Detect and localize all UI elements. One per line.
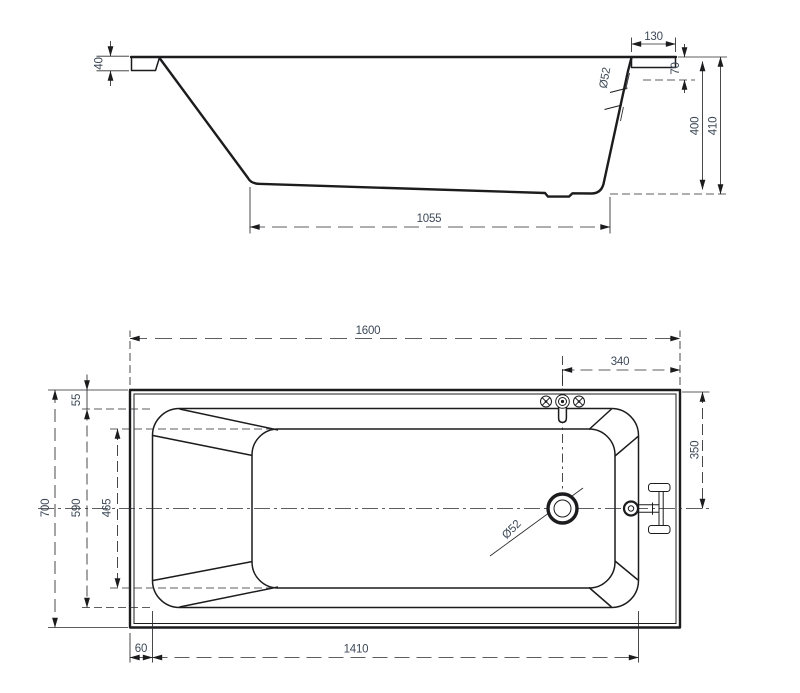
dim-end-rim-width: 130 [644, 31, 663, 43]
dim-base-width: 465 [102, 499, 114, 518]
technical-drawing-canvas: 40 130 Ø52 70 400 410 1055 [0, 0, 800, 693]
tub-bottom-and-foot-wall [258, 58, 632, 197]
dim-inner-length: 1410 [344, 644, 369, 656]
overflow-bracket-bottom-bar [649, 526, 671, 534]
dim-inner-width: 590 [71, 499, 83, 518]
drawing-sheet: 40 130 Ø52 70 400 410 1055 [0, 0, 800, 693]
dim-total-length: 1600 [356, 325, 381, 337]
dim-overflow-diameter: Ø52 [598, 67, 613, 90]
right-lip-section [632, 58, 676, 68]
plan-dimensions: 1600 340 350 700 55 590 465 [40, 325, 710, 663]
tub-profile [131, 57, 676, 197]
dim-inner-depth: 400 [690, 117, 702, 136]
dim-rim-skirt-height: 70 [670, 62, 682, 74]
dim-drain-diameter: Ø52 [500, 518, 523, 541]
backrest-edge-top [153, 409, 278, 456]
faucet-mixer-center [561, 400, 564, 403]
faucet-handle-right-center [578, 400, 581, 403]
dim-lip-height: 40 [94, 57, 106, 69]
dim-total-width: 700 [40, 499, 52, 518]
overflow-bracket-top-bar [649, 484, 671, 492]
drain: Ø52 [490, 488, 583, 556]
side-view: 40 130 Ø52 70 400 410 1055 [94, 31, 728, 234]
plan-view: Ø52 1600 340 350 700 [38, 325, 710, 663]
drain-outer-ring [548, 494, 577, 523]
faucet-handle-left-center [545, 400, 548, 403]
dim-faucet-offset: 340 [611, 356, 630, 368]
left-lip-section [132, 57, 160, 71]
head-slope-wall [160, 58, 259, 184]
dim-head-rim-margin: 55 [71, 394, 83, 406]
overflow-ring [624, 502, 638, 516]
dim-total-height: 410 [708, 117, 720, 136]
backrest-edge-bottom [153, 562, 278, 608]
dim-side-rim-margin: 60 [135, 643, 147, 655]
dim-base-length: 1055 [417, 213, 442, 225]
dim-overflow-offset: 350 [690, 441, 702, 460]
